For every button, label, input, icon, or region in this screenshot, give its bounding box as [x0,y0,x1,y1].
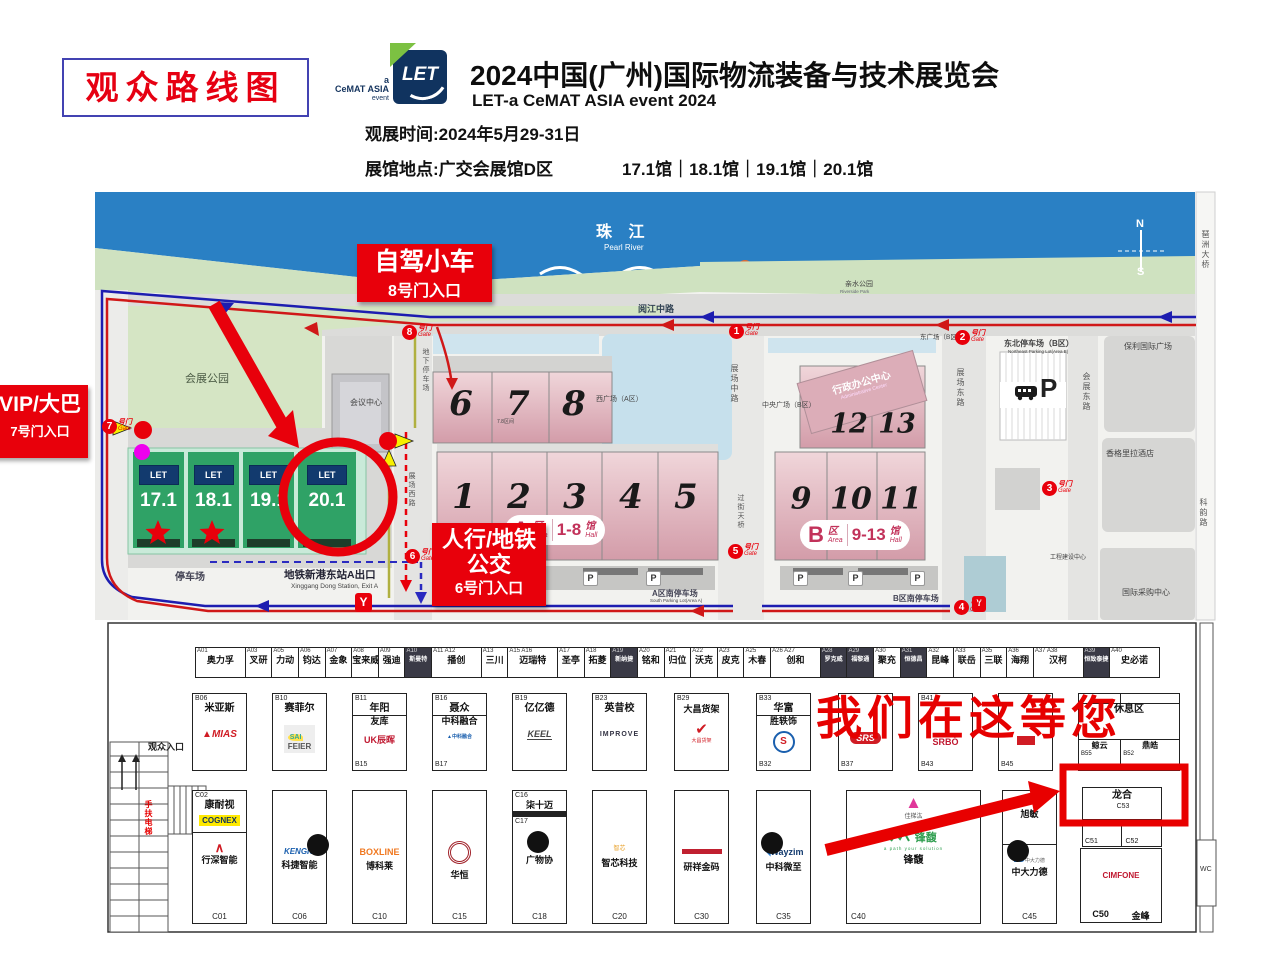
callout-self-drive-line1: 自驾小车 [357,247,492,277]
callout-vip-line1: VIP/大巴 [0,389,88,421]
booth-cell: A22 沃克 [690,647,718,678]
booth-c52: C52 [1122,820,1162,846]
booth-cell: A31 恒德昌 [900,647,928,678]
booth-c51: C51 [1083,820,1122,846]
booth-name: 聚充 [874,655,900,665]
green-hall-18-1: LET 18.1 [188,452,239,548]
booth-name: 罗克威 [821,655,847,665]
kengic-logo: KENGIC [284,847,315,856]
green-hall-18-1-num: 18.1 [188,490,239,512]
hall-4: 4 [619,477,643,517]
keel-logo: KEEL [527,729,551,740]
label-west-square: 西广场（A区） [596,396,643,404]
callout-self-drive-line2: 8号门入口 [357,277,492,301]
callout-walk-line3: 6号门入口 [432,577,546,598]
booth-name: 宝来威 [352,655,378,665]
area-a-range: 1-8 [557,520,582,540]
longhe-cells: C51 C52 [1083,819,1161,846]
visitor-route-map-poster: 观众路线图 a CeMAT ASIA event LET 2024中国(广州)国… [0,0,1280,960]
label-ne-parking-en: Northeast Parking Lot(Area B) [1008,350,1068,355]
wc-label: WC [1200,866,1212,874]
booth-cell: A08 宝来威 [351,647,379,678]
booth-cell: A18 拓菱 [584,647,612,678]
booth-cell: A39 恒致泰捷 [1083,647,1111,678]
booth-code: A37 A38 [1034,648,1083,655]
booth-code: A33 [954,648,980,655]
let-mini-logo: LET [307,465,347,485]
booth-cell: A15 A16 迈瑞特 [507,647,558,678]
booth-name: 钧达 [299,655,325,665]
label-zhanchang-east-road: 展场东路 [955,368,966,408]
booth-name: 三川 [482,655,508,665]
label-hotel: 香格里拉酒店 [1106,450,1154,459]
booth-cell: A25 木春 [743,647,771,678]
booth-name: 力动 [272,655,298,665]
green-hall-19-1: LET 19.1 [243,452,294,548]
booth-code: A21 [665,648,691,655]
booth-cell: A20 铭和 [637,647,665,678]
gate-1: 1号门Gate [729,324,759,339]
metro-logo-icon: Y [355,593,372,612]
booth-code: A11 A12 [432,648,481,655]
booth-b19: B19亿亿德 KEEL [512,693,567,771]
booth-cell: A33 联岳 [953,647,981,678]
visitor-entrance-label: 观众入口 [148,743,184,753]
booth-row-a: A01 奥力孚 A03 叉研 A05 力动 A06 钧达 A07 金象 A08 … [196,647,1160,678]
booth-cell: A07 金象 [325,647,353,678]
mias-logo: ▲MIAS [202,729,237,740]
zhixin-logo: 智芯 [613,843,625,852]
booth-code: A28 [821,648,847,655]
booth-name: 圣亭 [558,655,584,665]
booth-c40: ▲ 佳梯汯 锋馥 a path your solution 锋馥 C40 [846,790,981,924]
callout-vip-bus: VIP/大巴 7号门入口 [0,385,88,458]
booth-code: A13 [482,648,508,655]
booth-cell: A03 叉研 [245,647,273,678]
booth-code: A31 [901,648,927,655]
booth-name: 金象 [326,655,352,665]
label-flyover: 过街天桥 [735,494,745,530]
west-street [95,290,128,620]
booth-b29: B29大昌货架 ✔ 大昌货架 [674,693,729,771]
gate-8: 8号门Gate [402,325,432,340]
booth-code: A18 [585,648,611,655]
booth-name: 奥力孚 [196,655,245,665]
label-yuejiang-road: 阅江中路 [638,305,674,315]
label-ne-parking: 东北停车场（B区） [1004,340,1074,349]
booth-name: 铭和 [638,655,664,665]
booth-c10: BOXLINE 博科莱 C10 [352,790,407,924]
booth-name: 海翔 [1007,655,1033,665]
booth-name: 播创 [432,655,481,665]
hall-13: 13 [878,409,916,440]
let-mini-logo: LET [249,465,289,485]
label-riverside-park: 亲水公园 [845,281,873,289]
booth-code: A19 [611,648,637,655]
booth-code: A06 [299,648,325,655]
callout-walk-line2: 公交 [432,553,546,577]
let-mini-logo: LET [139,465,179,485]
booth-cell: A17 圣亭 [557,647,585,678]
booth-cell: A09 强迪 [378,647,406,678]
huaheng-logo [448,841,471,864]
booth-b16: B16聂众 中科融合 ▲中科融合 B17 [432,693,487,771]
booth-code: A10 [405,648,431,655]
saifeier-logo: SAI FEIER [284,725,316,753]
callout-vip-line2: 7号门入口 [0,421,88,440]
booth-cell: A19 新纳捷 [610,647,638,678]
let-mini-logo: LET [194,465,234,485]
booth-name: 强迪 [379,655,405,665]
booth-name: 汉柯 [1034,655,1083,665]
booth-code: A35 [981,648,1007,655]
booth-name: 归位 [665,655,691,665]
parking-p-icon: P [848,571,863,586]
booth-name: 联岳 [954,655,980,665]
river-name-en: Pearl River [604,244,644,253]
booth-cell: A10 斯曼特 [404,647,432,678]
label-riverside-park-en: Riverside Park [840,290,869,295]
area-b-label: B 区Area 9-13 馆Hall [800,520,910,550]
callout-self-drive: 自驾小车 8号门入口 [357,244,492,302]
booth-cell: A40 史必诺 [1109,647,1160,678]
booth-name: 叉研 [246,655,272,665]
booth-code: A26 A27 [771,648,820,655]
booth-c20: 智芯 智芯科技 C20 [592,790,647,924]
booth-code: A07 [326,648,352,655]
shengyi-logo: S [773,731,795,753]
gray-block-1 [995,468,1040,510]
booth-code: A32 [927,648,953,655]
cimfone-logo: CIMFONE [1103,871,1140,880]
hall-6: 6 [449,384,473,424]
booth-code: A40 [1110,648,1159,655]
booth-name: 创和 [771,655,820,665]
booth-c18: C16柒十迈 C17 广物协 C18 [512,790,567,924]
hall-12: 12 [830,409,868,440]
fengfu-logo: 锋馥 [890,828,936,846]
hall-8: 8 [562,384,586,424]
booth-cell: A06 钧达 [298,647,326,678]
green-hall-17-1-num: 17.1 [133,490,184,512]
hall-1: 1 [452,477,476,517]
booth-cell: A30 聚充 [873,647,901,678]
booth-b11: B11年阳 友库 UK辰晖 B15 [352,693,407,771]
river-name: 珠 江 [596,224,650,242]
label-expo-park: 会展公园 [185,373,229,385]
booth-name: 三联 [981,655,1007,665]
c40-tagline: a path your solution [884,846,943,851]
booth-code: A29 [847,648,873,655]
conference-center-inner [340,382,381,444]
green-hall-20-1: LET 20.1 [298,452,356,548]
label-keyun-road: 科韵路 [1198,498,1209,528]
improve-logo: IMPROVE [600,731,639,738]
booth-cell: A36 海翔 [1006,647,1034,678]
booth-code: A30 [874,648,900,655]
booth-code: A03 [246,648,272,655]
logo-let-text: LET [393,64,447,86]
booth-cell: A23 皮克 [717,647,745,678]
label-huizhan-east-road: 会展东路 [1081,372,1092,412]
gate-6: 6号门Gate [405,549,435,564]
c50-caption: C50金峰 [1081,909,1161,922]
compass-n: N [1136,218,1144,230]
booth-cell: A01 奥力孚 [195,647,246,678]
wayzim-logo: ◥Wayzim [763,847,803,858]
booth-c15: 华恒 C15 [432,790,487,924]
hall-2: 2 [507,477,531,517]
label-central-square: 中央广场（B区） [762,402,816,410]
gate-3: 3号门Gate [1042,481,1072,496]
label-parking-lot: 停车场 [175,572,205,583]
label-poly-plaza: 保利国际广场 [1124,343,1172,352]
gate-7: 7号门Gate [102,419,132,434]
booth-longhe: 龙合 C53 C51 C52 [1082,787,1162,847]
booth-code: A23 [718,648,744,655]
parking-p-large: P [1040,374,1057,403]
hall-3: 3 [563,477,587,517]
green-hall-17-1: LET 17.1 [133,452,184,548]
booth-code: A39 [1084,648,1110,655]
gate-2: 2号门Gate [955,330,985,345]
booth-c06: KENGIC 科捷智能 C06 [272,790,327,924]
xingshen-logo: ∧ [215,841,225,855]
area-b-guan: 馆 [890,527,902,537]
green-hall-20-1-num: 20.1 [298,490,356,512]
area-b-hall-en: Hall [890,537,902,544]
parking-p-icon: P [583,571,598,586]
zd-logo: ZD中大力德 [1014,849,1045,867]
booth-b33: B33华富 胜轶饰 S B32 [756,693,811,771]
booth-code: A05 [272,648,298,655]
area-b-qu: 区 [828,527,843,537]
callout-walk-line1: 人行/地铁 [432,527,546,553]
booth-name: 史必诺 [1110,655,1159,665]
booth-name: 木春 [744,655,770,665]
area-a-hall-en: Hall [585,532,597,539]
booth-cell: A13 三川 [481,647,509,678]
booth-b23: B23英昔校 IMPROVE [592,693,647,771]
area-b-letter: B [808,522,824,548]
booth-code: A36 [1007,648,1033,655]
sourcing-center-block [1100,548,1195,620]
label-metro-station: 地铁新港东站A出口 [284,570,376,582]
booth-name: 昆峰 [927,655,953,665]
booth-code: A15 A16 [508,648,557,655]
booth-c50: CIMFONE C50金峰 [1080,848,1162,923]
booth-b06: B06米亚斯 ▲MIAS [192,693,247,771]
we-are-here-text: 我们在这等您 [816,682,1122,748]
hall-10: 10 [830,482,872,517]
label-underground-parking: 地下停车场 [420,348,430,393]
booth-code: A25 [744,648,770,655]
booth-code: A17 [558,648,584,655]
label-pazhou-bridge: 琶洲大桥 [1200,230,1211,270]
booth-name: 恒德昌 [901,655,927,665]
gate-4: 4号门Gate [954,600,984,615]
booth-b52: 鼎皓 B52 [1121,740,1179,770]
booth-c45: 旭敏 ZD中大力德 中大力德 C45 [1002,790,1057,924]
pink-mountain-logo: ▲ [905,795,922,811]
rabbit-logo: ✔ [695,723,708,737]
booth-name: 新纳捷 [611,655,637,665]
booth-cell: A21 归位 [664,647,692,678]
parking-p-icon: P [646,571,661,586]
booth-name: 福黎通 [847,655,873,665]
label-b-south-parking: B区南停车场 [893,595,939,604]
hall-11: 11 [880,482,922,517]
c40-name1: 佳梯汯 [904,811,922,820]
area-a-guan: 馆 [585,522,597,532]
booth-name: 拓菱 [585,655,611,665]
red-dot-west [134,421,152,439]
booth-cell: A37 A38 汉柯 [1033,647,1084,678]
boxline-logo: BOXLINE [359,847,399,857]
gate-5: 5号门Gate [728,544,758,559]
booth-name: 恒致泰捷 [1084,655,1110,665]
booth-code: A09 [379,648,405,655]
hall-9: 9 [791,482,812,517]
water-strip-west [433,334,599,354]
booth-cell: A32 昆峰 [926,647,954,678]
booth-name: 皮克 [718,655,744,665]
booth-cell: A29 福黎通 [846,647,874,678]
booth-name: 沃克 [691,655,717,665]
escalator-label: 手扶电梯 [143,800,154,836]
green-hall-19-1-num: 19.1 [243,490,294,512]
uk-chenhui-logo: UK辰晖 [364,733,395,746]
booth-cell: A11 A12 播创 [431,647,482,678]
booth-code: A22 [691,648,717,655]
hall-5: 5 [674,477,698,517]
parking-p-icon: P [910,571,925,586]
label-metro-station-en: Xinggang Dong Station, Exit A [291,583,378,590]
zhongkeronghe-logo: ▲中科融合 [447,733,472,740]
label-zhanchang-mid-road: 展场中路 [729,364,740,404]
booth-cell: A05 力动 [271,647,299,678]
booth-cell: A26 A27 创和 [770,647,821,678]
booth-name: 迈瑞特 [508,655,557,665]
parking-p-icon: P [793,571,808,586]
booth-c01: C02康耐视 COGNEX ∧ 行深智能 C01 [192,790,247,924]
rabbit-logo-text: 大昌货架 [691,737,711,744]
label-zhanchang-west-road: 展场西路 [406,472,416,508]
booth-code: A08 [352,648,378,655]
yanxiang-logo [682,849,722,854]
booth-c35: ◥Wayzim 中科微至 C35 [756,790,811,924]
area-b-range: 9-13 [852,525,886,545]
gwuxie-logo [532,834,547,849]
booth-b10: B10赛菲尔 SAI FEIER [272,693,327,771]
booth-c30: 研祥金码 C30 [674,790,729,924]
callout-walk-metro: 人行/地铁 公交 6号门入口 [432,523,546,606]
label-conference-center: 会议中心 [350,399,382,408]
booth-cell: A35 三联 [980,647,1008,678]
red-dot-east [379,432,397,450]
booth-cell: A28 罗克威 [820,647,848,678]
booth-code: A01 [196,648,245,655]
label-a-south-parking-en: South Parking Lot(Area A) [650,599,702,604]
area-b-en: Area [828,537,843,544]
label-engineering-center: 工程建设中心 [1050,555,1086,562]
hall-7: 7 [506,384,530,424]
booth-code: A20 [638,648,664,655]
cognex-logo: COGNEX [199,815,240,826]
let-logo-icon: LET [393,50,447,104]
label-intl-sourcing-center: 国际采购中心 [1122,589,1170,598]
compass-s: S [1137,266,1144,278]
booth-name: 斯曼特 [405,655,431,665]
